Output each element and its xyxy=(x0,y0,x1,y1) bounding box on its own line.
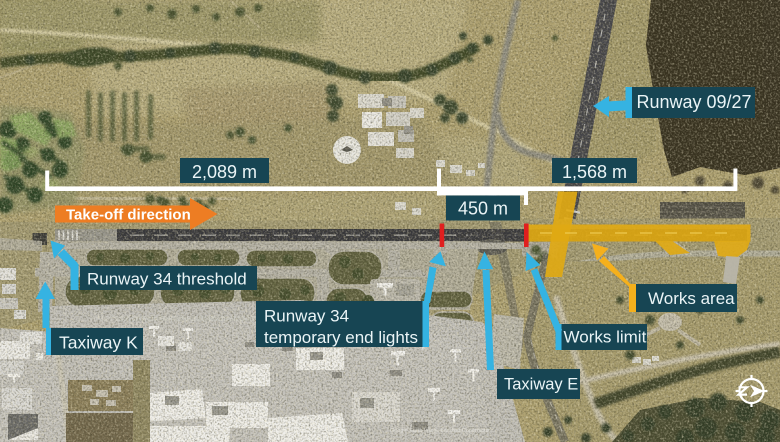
svg-text:Google Earth Image Landsat Cop: Google Earth Image Landsat Copernicus xyxy=(390,428,490,434)
svg-text:Take-off direction: Take-off direction xyxy=(66,207,191,224)
svg-text:Runway 34: Runway 34 xyxy=(264,307,349,326)
svg-text:450 m: 450 m xyxy=(458,199,508,219)
svg-text:temporary end lights: temporary end lights xyxy=(264,328,418,347)
svg-text:Runway 09/27: Runway 09/27 xyxy=(636,92,751,112)
svg-text:Works area: Works area xyxy=(648,289,735,308)
svg-text:2,089 m: 2,089 m xyxy=(192,162,257,182)
svg-text:1,568 m: 1,568 m xyxy=(562,162,627,182)
svg-text:Taxiway E: Taxiway E xyxy=(504,376,578,394)
svg-text:Taxiway K: Taxiway K xyxy=(59,333,138,353)
svg-text:Runway 34 threshold: Runway 34 threshold xyxy=(87,270,247,289)
svg-text:Works limit: Works limit xyxy=(564,328,647,347)
